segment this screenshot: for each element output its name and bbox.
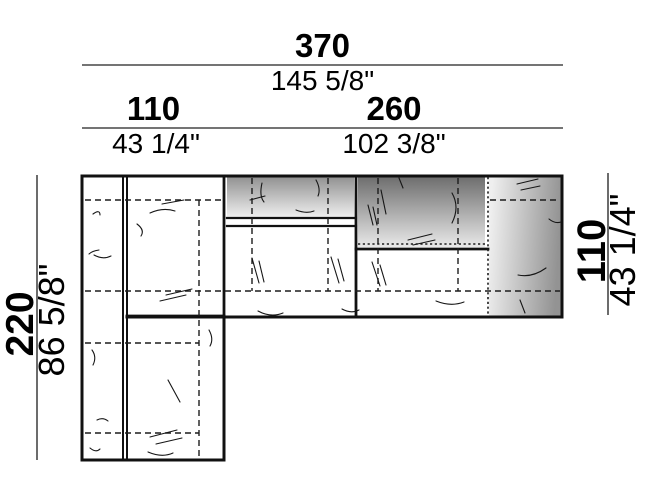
sofa-dimension-drawing: 370 145 5/8" 110 43 1/4" 260 102 3/8" 22…	[0, 0, 656, 492]
right-arm-shade	[489, 177, 562, 316]
dim-left-depth-inches: 86 5/8"	[33, 230, 71, 410]
dim-right-depth-inches: 43 1/4"	[604, 165, 642, 335]
dim-left-section-inches: 43 1/4"	[82, 130, 230, 158]
dim-right-section-cm: 260	[225, 92, 563, 125]
shaded-panels	[227, 177, 562, 316]
dim-left-section-cm: 110	[82, 92, 225, 125]
middle-backrest-shade	[227, 177, 354, 218]
dim-overall-cm: 370	[82, 29, 563, 62]
dim-right-section-inches: 102 3/8"	[225, 130, 563, 158]
